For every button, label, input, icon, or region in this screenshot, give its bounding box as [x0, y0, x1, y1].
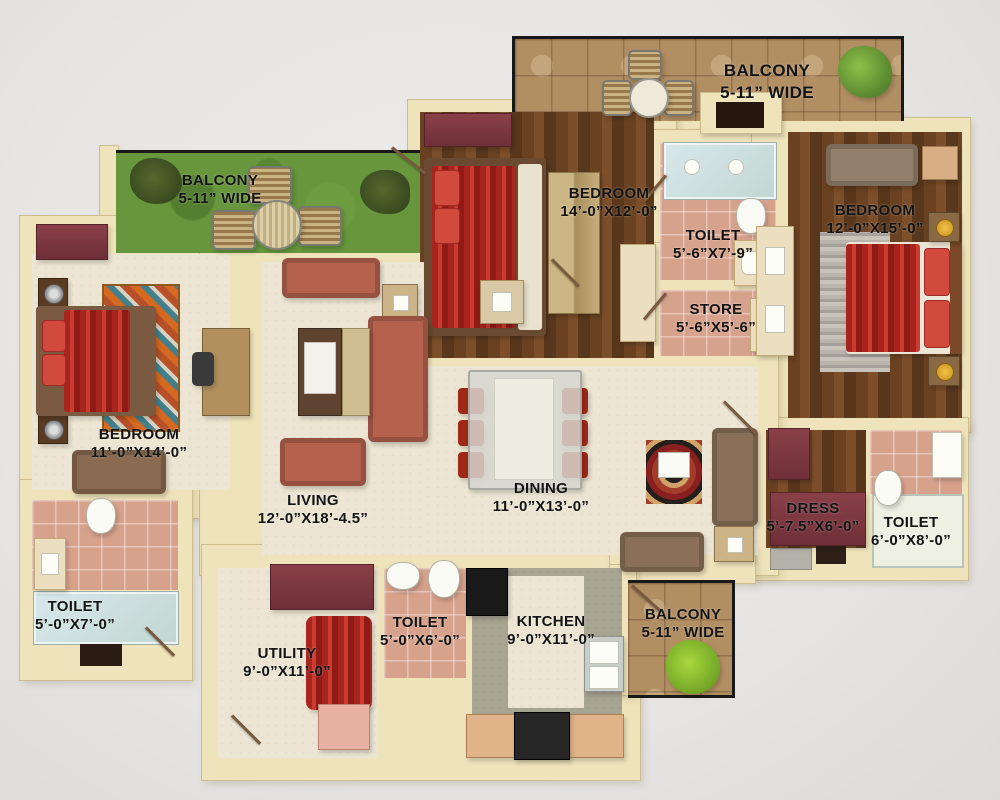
balcony-chair: [212, 210, 256, 250]
plant: [666, 640, 720, 694]
stove: [514, 712, 570, 760]
fridge: [466, 568, 508, 616]
toilet-wc: [874, 470, 902, 506]
pillow: [924, 248, 950, 296]
room-dims: 5’-6”X5’-6”: [676, 319, 756, 337]
room-label-balcony-top-left: BALCONY 5-11” WIDE: [178, 172, 261, 208]
lamp-table: [714, 526, 754, 562]
toilet-wc: [86, 498, 116, 534]
table-top: [492, 292, 512, 312]
room-label-dining: DINING 11’-0”X13’-0”: [493, 480, 589, 516]
lamp: [393, 295, 409, 311]
room-name: BALCONY: [178, 172, 261, 190]
dresser: [756, 226, 794, 356]
nightstand: [928, 356, 960, 386]
room-name: TOILET: [35, 598, 115, 616]
door-mat: [816, 544, 846, 564]
room-label-living: LIVING 12’-0”X18’-4.5”: [258, 492, 368, 528]
room-dims: 12’-0”X18’-4.5”: [258, 510, 368, 528]
room-name: BALCONY: [641, 606, 724, 624]
room-name: UTILITY: [243, 645, 331, 663]
shower: [664, 143, 776, 199]
room-label-balcony-bottom: BALCONY 5-11” WIDE: [641, 606, 724, 642]
entry-step-mat: [716, 102, 764, 128]
room-dims: 11’-0”X14’-0”: [91, 444, 187, 462]
room-name: DINING: [493, 480, 589, 498]
shower-tray: [932, 432, 962, 478]
door-mat: [770, 548, 812, 570]
room-name: TOILET: [380, 614, 460, 632]
room-label-bedroom-top: BEDROOM 14’-0”X12’-0”: [560, 185, 657, 221]
laptop: [658, 452, 690, 478]
wardrobe: [36, 224, 108, 260]
shelf: [342, 328, 370, 416]
dresser: [620, 244, 656, 342]
room-label-toilet-bottom: TOILET 5’-0”X6’-0”: [380, 614, 460, 650]
pillow: [434, 170, 460, 206]
washbasin: [34, 538, 66, 590]
room-label-balcony-top-right: BALCONY 5-11” WIDE: [720, 60, 814, 104]
nightstand: [928, 212, 960, 242]
dresser-item: [765, 247, 785, 275]
room-dims: 5’-0”X6’-0”: [380, 632, 460, 650]
pillow: [434, 208, 460, 244]
room-dims: 11’-0”X13’-0”: [493, 498, 589, 516]
room-name: BEDROOM: [826, 202, 923, 220]
room-name: DRESS: [766, 500, 859, 518]
sofa: [282, 258, 380, 298]
room-name: KITCHEN: [507, 613, 595, 631]
dresser-item: [765, 305, 785, 333]
lamp: [936, 363, 954, 381]
plant: [130, 158, 182, 204]
room-dims: 12’-0”X15’-0”: [826, 220, 923, 238]
room-name: TOILET: [673, 227, 753, 245]
room-dims: 9’-0”X11’-0”: [243, 663, 331, 681]
wardrobe: [768, 428, 810, 480]
loveseat: [280, 438, 366, 486]
room-label-utility: UTILITY 9’-0”X11’-0”: [243, 645, 331, 681]
balcony-chair: [298, 206, 342, 246]
bed-headboard: [950, 242, 962, 354]
lamp: [727, 537, 743, 553]
room-dims: 14’-0”X12’-0”: [560, 203, 657, 221]
speaker: [44, 284, 64, 304]
pillow: [42, 320, 66, 352]
desk-chair: [192, 352, 214, 386]
room-label-kitchen: KITCHEN 9’-0”X11’-0”: [507, 613, 595, 649]
room-label-bedroom-right: BEDROOM 12’-0”X15’-0”: [826, 202, 923, 238]
sink-basin: [589, 666, 619, 689]
speaker: [44, 420, 64, 440]
room-label-bedroom-left: BEDROOM 11’-0”X14’-0”: [91, 426, 187, 462]
room-label-toilet-left: TOILET 5’-0”X7’-0”: [35, 598, 115, 634]
mattress: [318, 704, 370, 750]
nightstand: [38, 414, 68, 444]
floor-plan: BALCONY 5-11” WIDE BALCONY 5-11” WIDE BE…: [0, 0, 1000, 800]
bed-duvet: [64, 310, 130, 412]
room-dims: 5-11” WIDE: [641, 624, 724, 642]
washbasin: [386, 562, 420, 590]
side-table: [480, 280, 524, 324]
tv: [304, 342, 336, 394]
lamp-table: [382, 284, 418, 320]
counter: [270, 564, 374, 610]
room-dims: 9’-0”X11’-0”: [507, 631, 595, 649]
basin: [41, 553, 59, 575]
balcony-table: [629, 78, 669, 118]
balcony-chair: [602, 80, 632, 116]
room-dims: 5-11” WIDE: [720, 82, 814, 104]
room-label-toilet-right: TOILET 6’-0”X8’-0”: [871, 514, 951, 550]
room-label-toilet-top: TOILET 5’-6”X7’-9”: [673, 227, 753, 263]
room-name: STORE: [676, 301, 756, 319]
toilet-left-niche: [80, 644, 122, 666]
room-dims: 5’-7.5”X6’-0”: [766, 518, 859, 536]
room-dims: 5’-0”X7’-0”: [35, 616, 115, 634]
shower-jet: [728, 159, 744, 175]
room-dims: 6’-0”X8’-0”: [871, 532, 951, 550]
room-name: BEDROOM: [560, 185, 657, 203]
side-table: [922, 146, 958, 180]
room-label-dress: DRESS 5’-7.5”X6’-0”: [766, 500, 859, 536]
lamp: [936, 219, 954, 237]
room-name: LIVING: [258, 492, 368, 510]
shower-jet: [684, 159, 700, 175]
room-dims: 5’-6”X7’-9”: [673, 245, 753, 263]
sofa: [620, 532, 704, 572]
room-name: BEDROOM: [91, 426, 187, 444]
room-name: BALCONY: [720, 60, 814, 82]
bed-duvet: [846, 244, 920, 352]
pillow: [42, 354, 66, 386]
balcony-chair: [628, 50, 662, 80]
wardrobe: [424, 113, 512, 147]
sofa: [712, 428, 758, 526]
sofa: [826, 144, 918, 186]
table-runner: [494, 378, 554, 480]
nightstand: [38, 278, 68, 308]
plant: [360, 170, 410, 214]
pillow: [924, 300, 950, 348]
room-dims: 5-11” WIDE: [178, 190, 261, 208]
chaise-sofa: [368, 316, 428, 442]
toilet-wc: [428, 560, 460, 598]
room-name: TOILET: [871, 514, 951, 532]
room-label-store: STORE 5’-6”X5’-6”: [676, 301, 756, 337]
